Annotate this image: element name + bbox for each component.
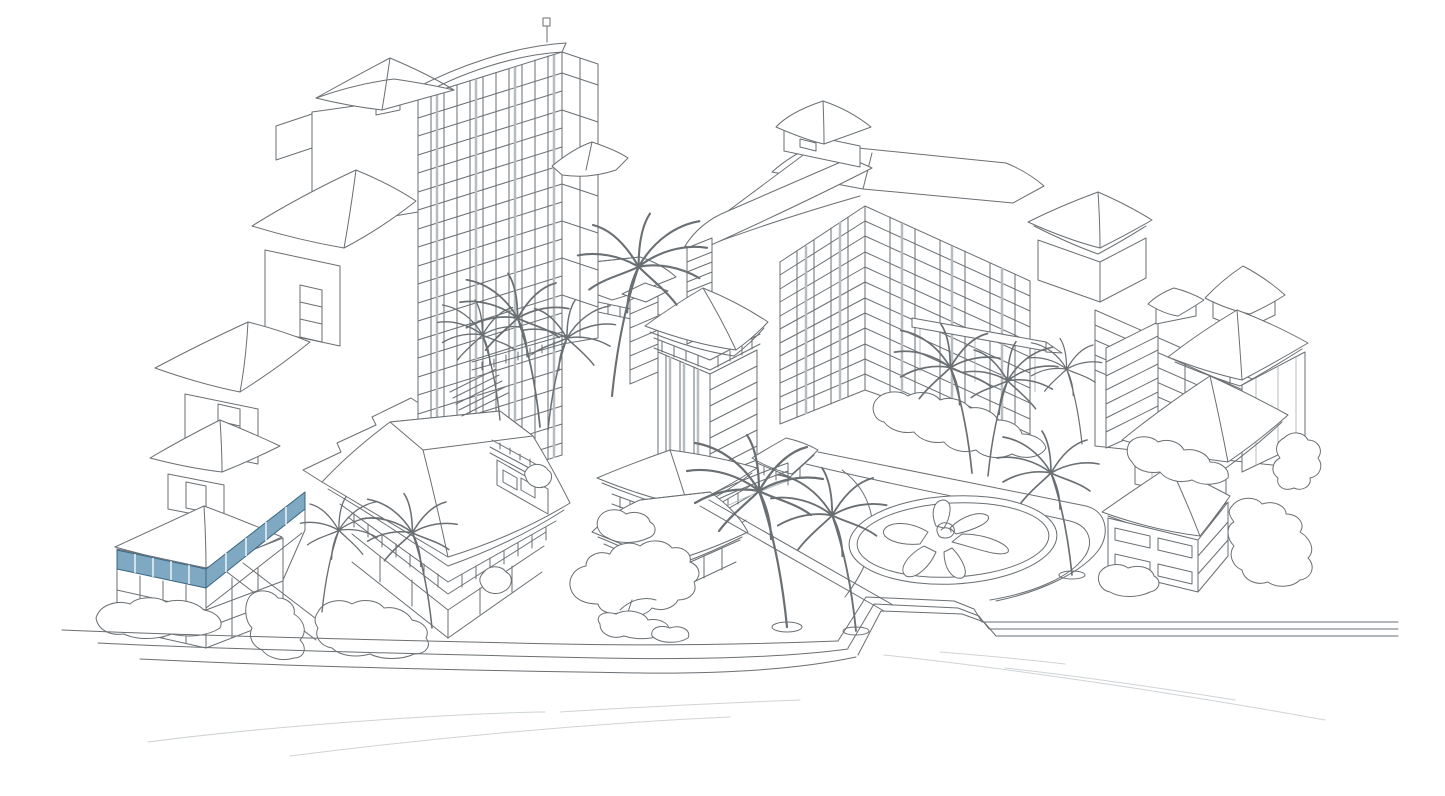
rooftop-cupola <box>776 101 871 167</box>
pavilion-two-roof <box>752 438 818 474</box>
villa-cluster <box>1098 266 1320 597</box>
hedge <box>1228 498 1312 586</box>
tower-antenna <box>543 18 550 42</box>
central-tower <box>645 288 768 478</box>
resort-map-canvas <box>0 0 1445 796</box>
right-end-tower <box>1028 192 1152 302</box>
ocean-waves <box>148 652 1325 756</box>
palm-tree <box>1027 338 1102 444</box>
resort-illustration <box>0 0 1445 796</box>
seawall <box>838 597 1398 655</box>
dormer-cupola <box>1148 288 1204 324</box>
hedge <box>1273 433 1321 489</box>
central-tower-roof <box>645 288 768 350</box>
plumeria-tree <box>570 541 699 642</box>
